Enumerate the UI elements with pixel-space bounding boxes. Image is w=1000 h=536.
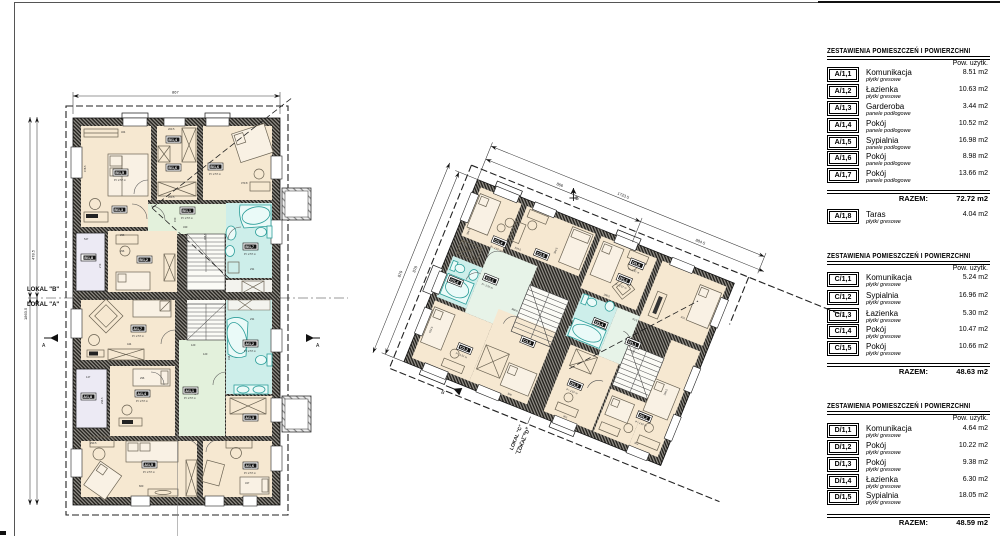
svg-text:120: 120 xyxy=(191,343,196,347)
svg-text:444: 444 xyxy=(127,342,132,346)
svg-text:A: A xyxy=(316,343,320,349)
svg-text:A/1,1: A/1,1 xyxy=(185,389,194,393)
svg-text:120: 120 xyxy=(203,352,208,356)
svg-text:370.8: 370.8 xyxy=(241,181,248,185)
svg-text:B/1,6: B/1,6 xyxy=(210,165,219,169)
svg-text:B/1,3: B/1,3 xyxy=(114,208,123,212)
svg-text:231: 231 xyxy=(250,317,255,321)
svg-text:P= 2.57 m: P= 2.57 m xyxy=(143,470,155,474)
svg-text:1863.5: 1863.5 xyxy=(23,307,28,320)
svg-text:B/1,2: B/1,2 xyxy=(139,258,148,262)
svg-text:200.5: 200.5 xyxy=(168,127,175,131)
svg-text:LOKAL "B": LOKAL "B" xyxy=(27,287,59,293)
svg-text:A: A xyxy=(42,343,46,349)
svg-text:340: 340 xyxy=(183,225,188,229)
svg-text:878: 878 xyxy=(411,264,418,273)
svg-text:347: 347 xyxy=(245,481,250,485)
svg-text:B/1,5: B/1,5 xyxy=(115,171,124,175)
svg-text:1723.5: 1723.5 xyxy=(617,191,631,201)
svg-text:B/1,4: B/1,4 xyxy=(168,138,177,142)
svg-text:478.5: 478.5 xyxy=(83,165,87,172)
svg-text:P= 2.57 m: P= 2.57 m xyxy=(181,216,193,220)
svg-text:B/1,7: B/1,7 xyxy=(245,245,254,249)
svg-text:B: B xyxy=(440,390,446,397)
svg-text:B/1,8: B/1,8 xyxy=(84,256,93,260)
svg-text:290.5: 290.5 xyxy=(90,441,97,445)
svg-text:A/1,7: A/1,7 xyxy=(133,327,142,331)
svg-text:547: 547 xyxy=(84,237,89,241)
svg-text:P= 2.57 m: P= 2.57 m xyxy=(184,396,196,400)
svg-text:A/1,3: A/1,3 xyxy=(245,416,254,420)
svg-text:B/1,6: B/1,6 xyxy=(168,166,177,170)
svg-text:P= 2.57 m: P= 2.57 m xyxy=(209,172,221,176)
svg-text:P= 2.57 m: P= 2.57 m xyxy=(136,399,148,403)
svg-text:P= 2.57 m: P= 2.57 m xyxy=(244,349,256,353)
svg-text:A/1,5: A/1,5 xyxy=(144,463,153,467)
svg-text:A/1,4: A/1,4 xyxy=(137,392,146,396)
svg-text:P= 2.57 m: P= 2.57 m xyxy=(132,334,144,338)
svg-text:A/1,2: A/1,2 xyxy=(245,342,254,346)
svg-text:478.5: 478.5 xyxy=(31,249,36,260)
svg-text:314: 314 xyxy=(227,355,231,360)
svg-text:A/1,8: A/1,8 xyxy=(83,395,92,399)
svg-text:200.5: 200.5 xyxy=(168,195,175,199)
svg-text:147: 147 xyxy=(86,375,91,379)
svg-text:884.5: 884.5 xyxy=(695,237,707,246)
svg-text:234.5: 234.5 xyxy=(100,397,104,404)
svg-text:867: 867 xyxy=(172,90,179,95)
svg-text:P= 2.57 m: P= 2.57 m xyxy=(114,178,126,182)
svg-text:866: 866 xyxy=(556,181,565,188)
svg-text:296: 296 xyxy=(140,376,145,380)
svg-text:150: 150 xyxy=(173,217,177,222)
svg-text:A/1,6: A/1,6 xyxy=(245,464,254,468)
svg-text:296: 296 xyxy=(120,233,125,237)
svg-text:P= 2.57 m: P= 2.57 m xyxy=(244,471,256,475)
svg-text:660: 660 xyxy=(139,484,144,488)
svg-text:296: 296 xyxy=(120,249,125,253)
svg-text:273: 273 xyxy=(98,263,102,268)
svg-text:P= 2.57 m: P= 2.57 m xyxy=(244,252,256,256)
svg-text:B/1,1: B/1,1 xyxy=(182,209,191,213)
svg-text:231: 231 xyxy=(250,267,255,271)
svg-text:LOKAL "A": LOKAL "A" xyxy=(27,302,59,308)
svg-text:324: 324 xyxy=(121,130,126,134)
svg-text:306.5: 306.5 xyxy=(203,233,207,240)
svg-text:879: 879 xyxy=(396,269,403,278)
